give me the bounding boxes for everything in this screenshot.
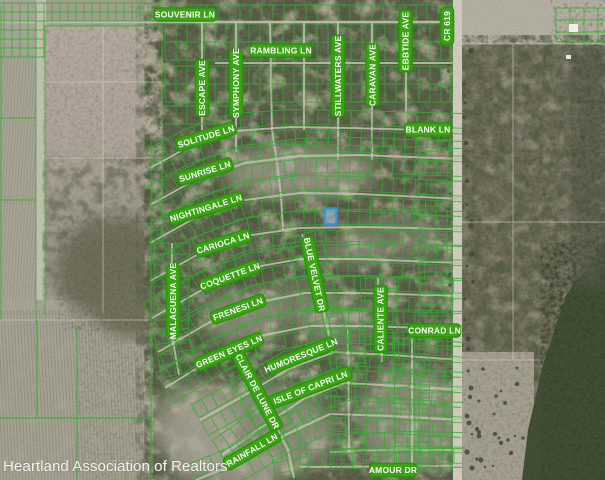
svg-text:STILLWATERS AVE: STILLWATERS AVE [333, 35, 343, 116]
svg-text:ESCAPE AVE: ESCAPE AVE [197, 60, 207, 116]
svg-text:CARAVAN AVE: CARAVAN AVE [368, 44, 378, 106]
svg-text:BLANK LN: BLANK LN [405, 125, 450, 135]
svg-text:AMOUR DR: AMOUR DR [369, 465, 417, 475]
svg-text:SYMPHONY AVE: SYMPHONY AVE [231, 48, 241, 118]
svg-text:CONRAD LN: CONRAD LN [408, 326, 461, 336]
svg-text:CR 619: CR 619 [442, 11, 452, 41]
svg-text:EBBTIDE AVE: EBBTIDE AVE [401, 12, 411, 71]
svg-text:CALIENTE AVE: CALIENTE AVE [376, 287, 386, 351]
svg-text:MALAGUENA AVE: MALAGUENA AVE [168, 263, 178, 340]
svg-text:RAMBLING LN: RAMBLING LN [250, 46, 312, 56]
svg-text:Heartland Association of Realt: Heartland Association of Realtors [3, 458, 228, 475]
svg-text:SOUVENIR LN: SOUVENIR LN [155, 10, 215, 20]
